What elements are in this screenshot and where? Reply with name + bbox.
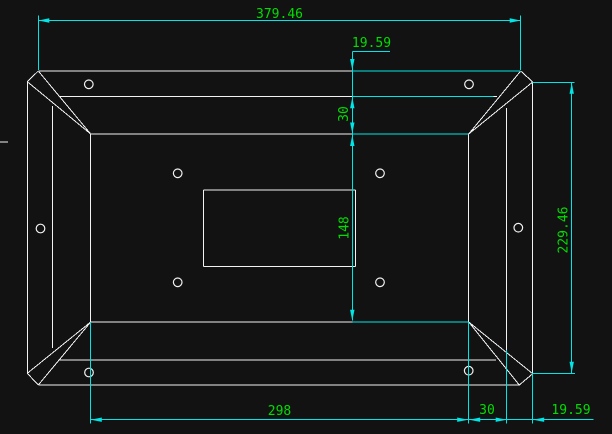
hole-mid-right — [514, 223, 523, 232]
arrow-opening-height-down — [350, 310, 354, 321]
hole-top-right — [465, 80, 474, 89]
hole-bottom-left — [85, 368, 94, 377]
dim-label-top-offset: 19.59 — [352, 36, 391, 51]
miter-bottom-left-a — [38, 322, 90, 385]
miter-bottom-right-a — [469, 322, 520, 385]
hole-inner-top-right — [376, 169, 385, 178]
chamfer-bottom-right — [519, 374, 532, 385]
miter-bottom-left-b — [27, 322, 90, 373]
arrow-bottom-band-right — [496, 418, 507, 422]
dimension-layer — [38, 16, 593, 424]
arrow-opening-height-up — [350, 135, 354, 146]
arrow-height-up — [570, 83, 574, 94]
miter-top-left-a — [38, 71, 90, 134]
chamfer-bottom-left — [27, 373, 38, 385]
miter-bottom-right-b — [469, 322, 533, 374]
arrow-height-down — [570, 362, 574, 373]
miter-top-left-b — [27, 82, 90, 134]
arrow-opening-width-left — [91, 418, 102, 422]
miter-top-right-b — [469, 82, 533, 134]
miter-top-right-a — [469, 71, 521, 134]
arrow-width-right — [510, 18, 521, 22]
dim-label-opening-height: 148 — [338, 216, 353, 239]
label-layer: 379.46 19.59 30 148 229.46 298 30 19.59 — [256, 7, 591, 419]
hole-inner-bottom-left — [173, 278, 182, 287]
dim-label-total-width: 379.46 — [256, 7, 303, 22]
dim-label-bottom-band: 30 — [479, 403, 495, 418]
hole-inner-bottom-right — [376, 278, 385, 287]
dim-label-total-height: 229.46 — [557, 207, 572, 254]
arrow-top-band-down — [350, 123, 354, 134]
chamfer-top-left — [27, 71, 38, 82]
dim-label-opening-width: 298 — [268, 404, 291, 419]
hole-inner-top-left — [173, 169, 182, 178]
arrow-width-left — [38, 18, 49, 22]
cad-canvas[interactable]: 379.46 19.59 30 148 229.46 298 30 19.59 — [0, 0, 612, 434]
hole-top-left — [85, 80, 94, 89]
dim-label-bottom-offset: 19.59 — [551, 403, 590, 418]
dim-label-top-band: 30 — [337, 106, 352, 122]
arrow-top-offset-down — [350, 59, 354, 70]
geometry-layer — [0, 71, 533, 385]
arrow-opening-width-right — [457, 418, 468, 422]
arrow-bottom-band-left — [469, 418, 480, 422]
arrow-bottom-offset-left — [533, 418, 544, 422]
hole-mid-left — [36, 224, 45, 233]
chamfer-top-right — [521, 71, 533, 82]
drawing-viewport: 379.46 19.59 30 148 229.46 298 30 19.59 — [0, 0, 612, 434]
